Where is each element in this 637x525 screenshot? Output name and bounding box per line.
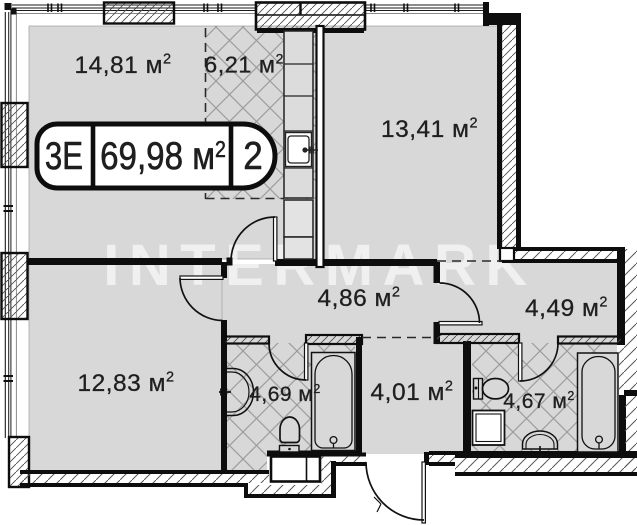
svg-text:4,49 м2: 4,49 м2 (525, 295, 608, 323)
svg-text:4,69 м2: 4,69 м2 (249, 382, 321, 406)
svg-text:14,81 м2: 14,81 м2 (74, 52, 171, 80)
svg-text:3Е: 3Е (45, 135, 83, 178)
svg-text:4,67 м2: 4,67 м2 (503, 389, 575, 413)
svg-text:6,21 м2: 6,21 м2 (204, 51, 284, 78)
svg-text:2: 2 (243, 133, 263, 177)
svg-text:13,41 м2: 13,41 м2 (381, 116, 478, 144)
svg-text:4,01 м2: 4,01 м2 (371, 379, 454, 407)
svg-text:12,83 м2: 12,83 м2 (77, 370, 174, 398)
svg-text:4,86 м2: 4,86 м2 (318, 285, 401, 313)
svg-text:69,98 м2: 69,98 м2 (100, 133, 226, 177)
